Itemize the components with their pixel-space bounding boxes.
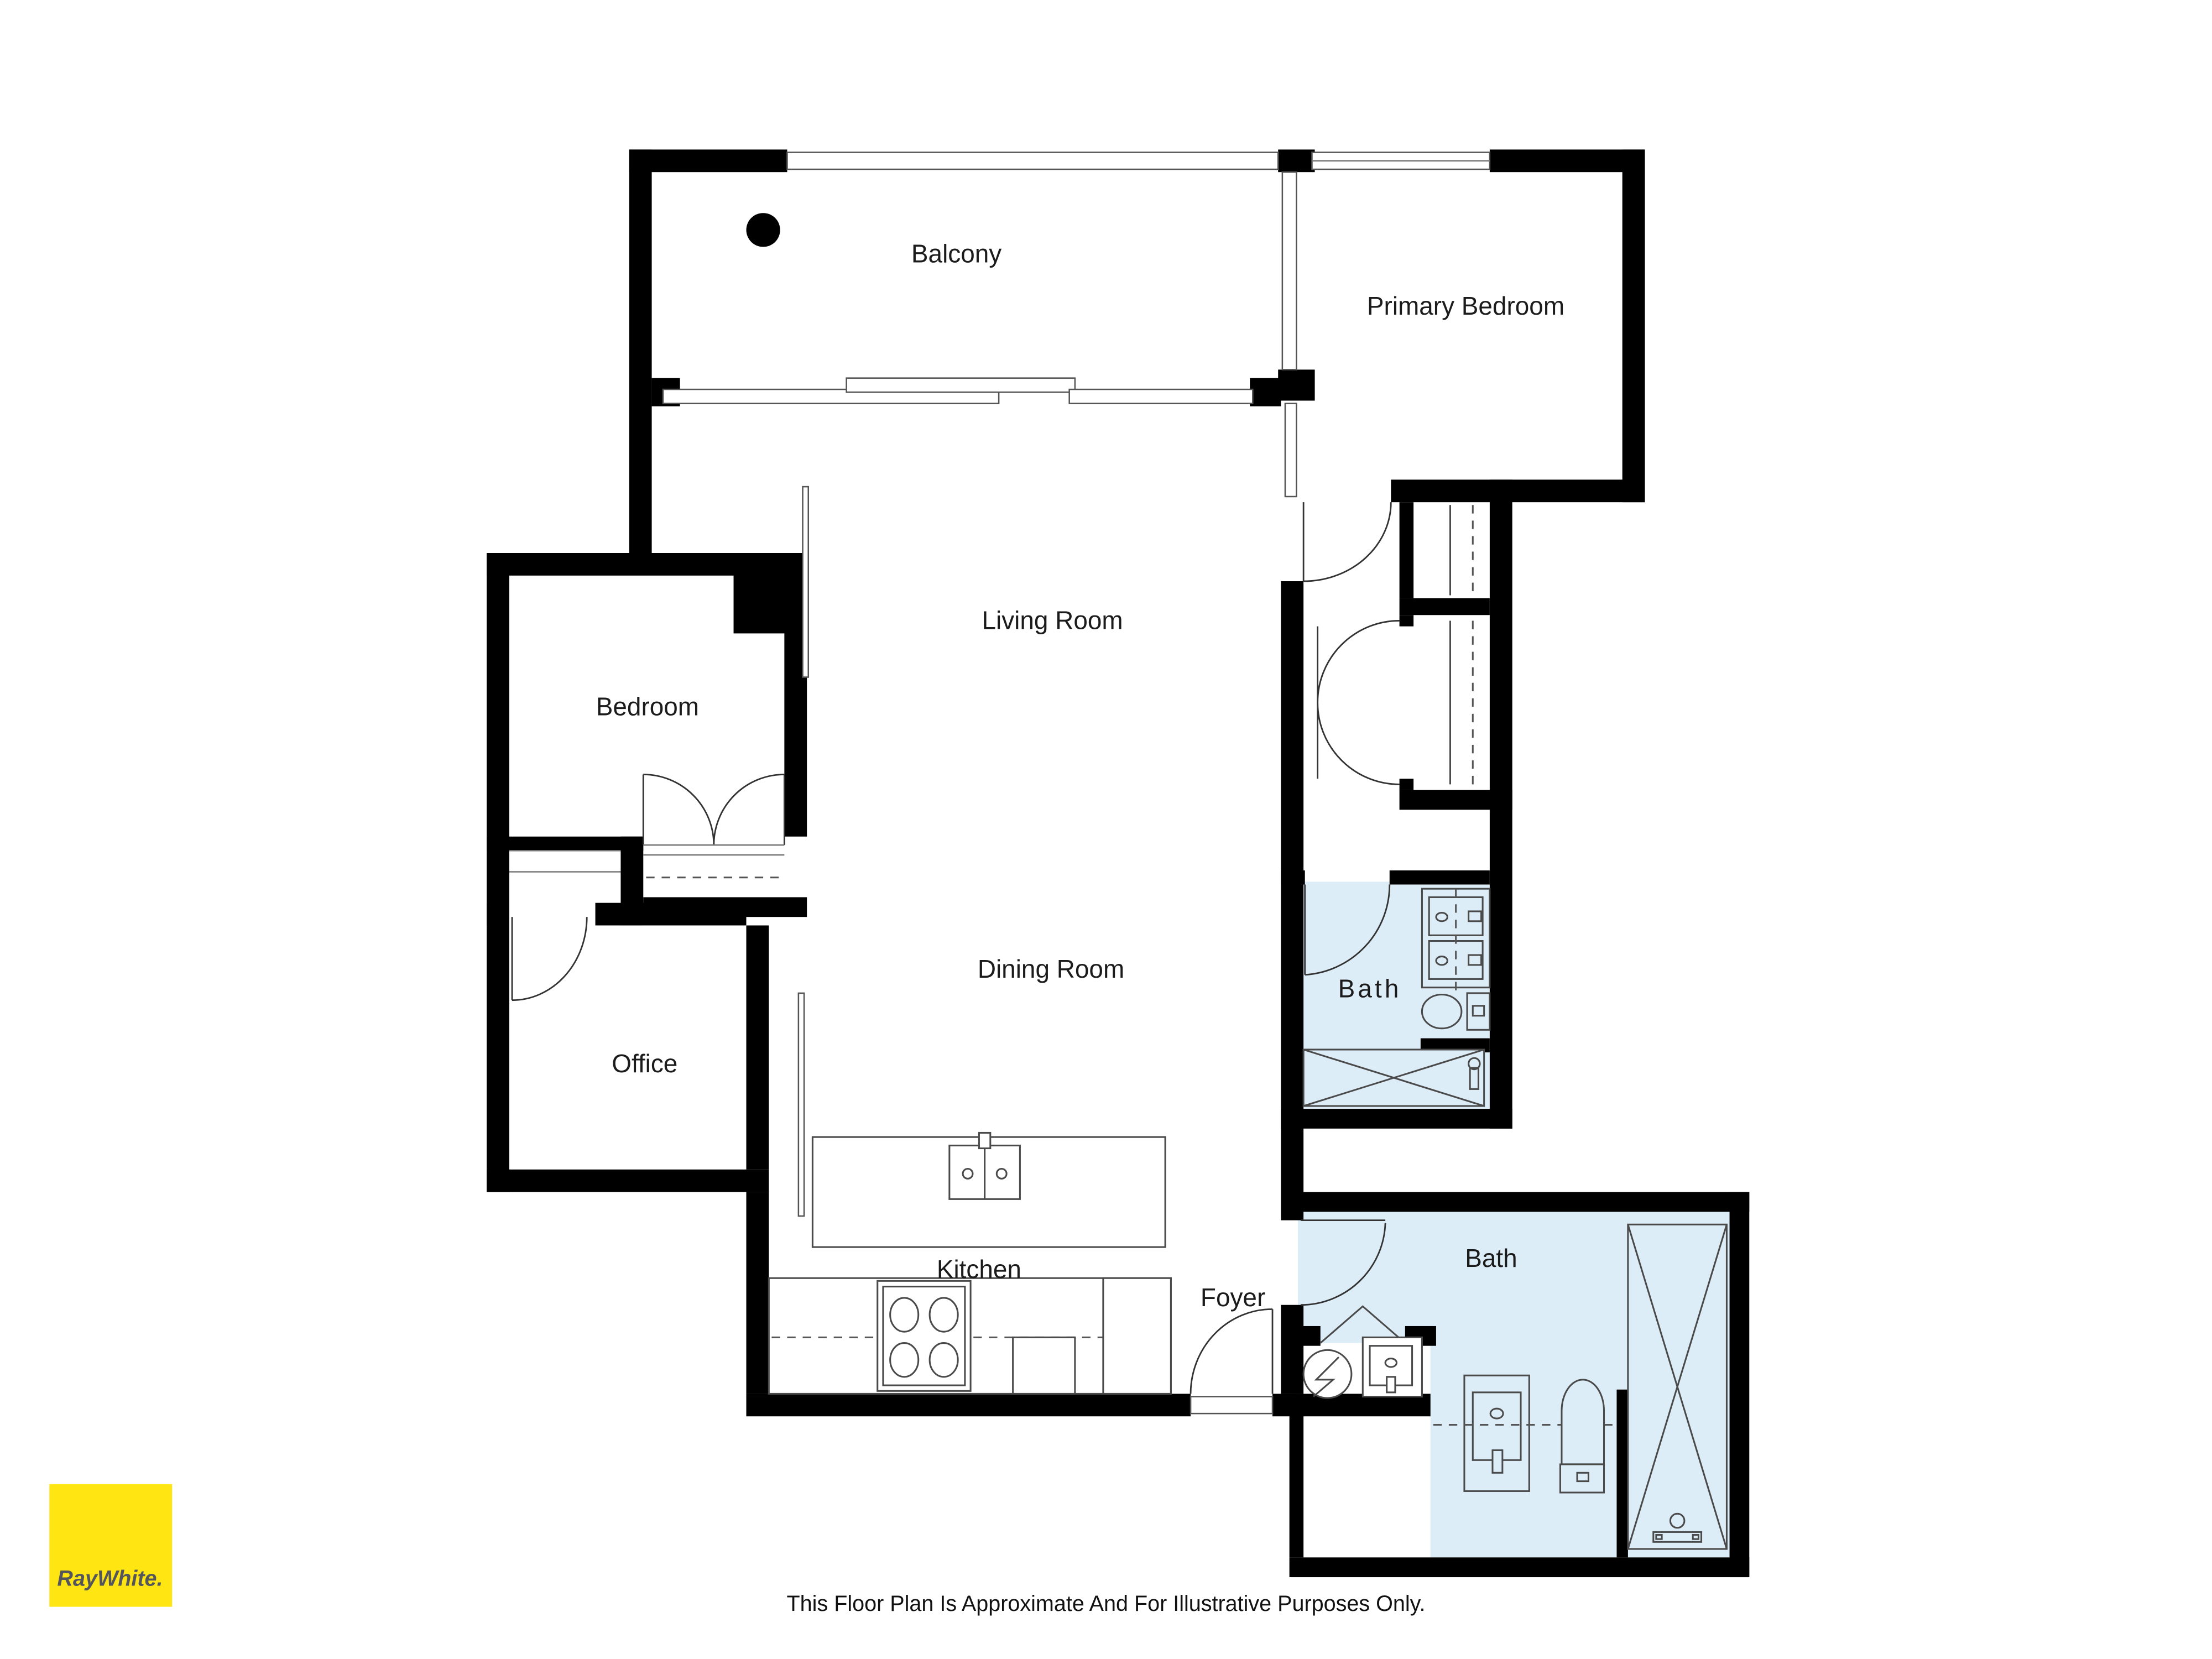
label-living-room: Living Room <box>982 606 1123 635</box>
wall-alcove-stub-left <box>1290 1326 1321 1346</box>
wall-primary-bottom <box>1391 479 1645 502</box>
disclaimer-text: This Floor Plan Is Approximate And For I… <box>787 1592 1426 1616</box>
label-dining-room: Dining Room <box>978 954 1124 983</box>
balcony-light-dot <box>746 213 780 247</box>
partition-living-upper <box>803 487 808 677</box>
bath-sink-icon <box>1464 1375 1529 1491</box>
partition-living-lower <box>799 993 804 1216</box>
wall-hall-left-lower <box>1281 1305 1303 1394</box>
wall-primary-right <box>1623 149 1645 502</box>
wall-closet-mid <box>1400 598 1490 615</box>
toilet-icon <box>1422 993 1489 1030</box>
wall-closet1-left <box>1400 502 1414 598</box>
wall-kitchen-left <box>746 1192 769 1394</box>
label-kitchen: Kitchen <box>937 1255 1021 1284</box>
label-bath-ensuite: Bath <box>1338 974 1402 1003</box>
wall-closet2-stub-top <box>1400 615 1414 626</box>
floor-plan: Balcony Primary Bedroom Living Room Bedr… <box>0 0 2212 1659</box>
sliding-door-panel-3 <box>1070 389 1253 404</box>
laundry-sink-icon <box>1363 1337 1422 1396</box>
wall-mainbath-top <box>1290 1192 1750 1212</box>
wall-balcony-post <box>1278 369 1314 400</box>
wall-west <box>487 553 509 1192</box>
shower-icon <box>1303 1050 1484 1106</box>
washer-icon <box>1303 1350 1352 1398</box>
label-bedroom: Bedroom <box>596 692 699 721</box>
shower-icon <box>1628 1224 1727 1549</box>
raywhite-logo-text: RayWhite. <box>57 1566 163 1590</box>
agency-logo: RayWhite. <box>49 1484 172 1607</box>
window-primary-left-lower <box>1285 404 1296 497</box>
wall-wardrobe-bottom <box>643 897 807 917</box>
wall-closet2-stub-bottom <box>1400 779 1414 790</box>
toilet-icon <box>1560 1380 1604 1493</box>
label-primary-bedroom: Primary Bedroom <box>1367 291 1564 320</box>
wall-ensuite-top-a <box>1281 870 1305 885</box>
wall-slider-stub-right <box>1250 378 1281 406</box>
wall-ensuite-bottom <box>1281 1109 1512 1129</box>
wall-office-right <box>746 925 769 1169</box>
wall-bottom-kitchen <box>746 1394 1191 1416</box>
wall-mainbath-bottom <box>1290 1557 1750 1577</box>
fridge-icon <box>1103 1278 1171 1394</box>
wall-mainbath-left <box>1290 1394 1304 1557</box>
column-bedroom <box>734 553 806 633</box>
dishwasher-icon <box>1013 1337 1075 1394</box>
wall-bedroom-bottom <box>487 837 643 851</box>
entry-threshold <box>1191 1397 1272 1414</box>
wall-shower-stub <box>1616 1390 1627 1558</box>
label-bath-main: Bath <box>1465 1244 1517 1272</box>
label-foyer: Foyer <box>1201 1283 1265 1312</box>
wall-balcony-left <box>629 149 652 559</box>
wall-top-b <box>1490 149 1645 172</box>
wall-top-a <box>629 149 787 172</box>
wall-top-post <box>1278 149 1314 172</box>
balcony-railing <box>787 153 1278 170</box>
kitchen-island <box>812 1133 1165 1247</box>
wall-closet2-bottom <box>1400 790 1512 810</box>
wall-ensuite-top-b <box>1390 870 1490 885</box>
wall-mainbath-right <box>1730 1192 1750 1577</box>
window-primary-left-upper <box>1282 172 1297 369</box>
label-office: Office <box>612 1049 677 1078</box>
label-balcony: Balcony <box>911 239 1001 268</box>
sliding-door-panel-2 <box>847 378 1075 393</box>
wall-office-bottom <box>487 1170 769 1192</box>
wall-office-top-a <box>487 903 504 926</box>
kitchen-counter <box>769 1278 1171 1394</box>
stove-icon <box>878 1281 971 1391</box>
